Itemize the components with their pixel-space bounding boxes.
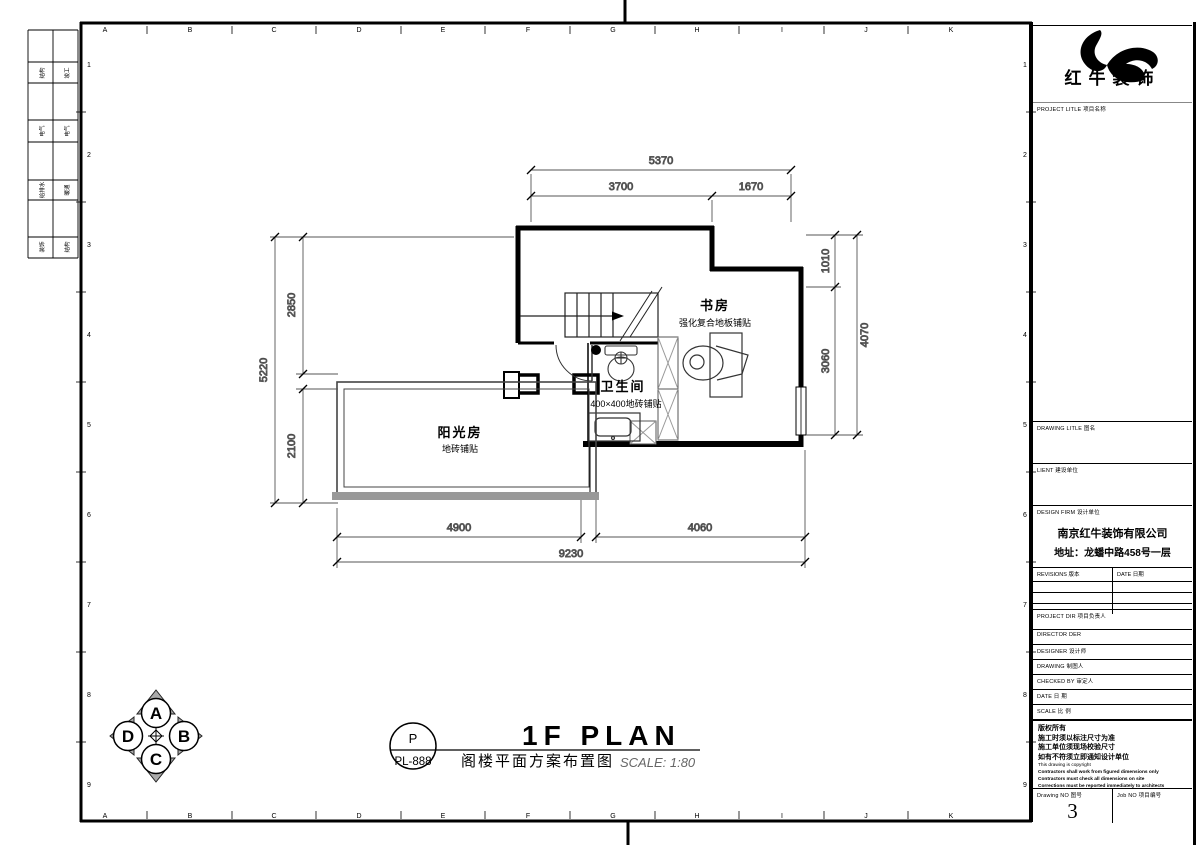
room-finish-sunroom: 地砖铺贴 xyxy=(442,443,478,454)
room-finish-bathroom: 400×400地砖铺贴 xyxy=(590,398,661,409)
design-firm-label: DESIGN FIRM 设计单位 xyxy=(1033,506,1192,516)
revision-row xyxy=(1033,581,1192,592)
grid-letter: F xyxy=(526,27,530,34)
grid-letter: I xyxy=(781,27,783,34)
drawing-canvas: A B C D E F G H I J K A B C D E F G H I … xyxy=(0,0,1200,845)
grid-number: 5 xyxy=(1023,422,1027,429)
dim-bottom-total: 9230 xyxy=(559,548,583,560)
checked-by-label: CHECKED BY 审定人 xyxy=(1033,675,1192,685)
dim-bottom-right: 4060 xyxy=(688,522,712,534)
grid-references: A B C D E F G H I J K A B C D E F G H I … xyxy=(76,26,1036,820)
grid-letter: A xyxy=(103,813,108,820)
drawing-label: DRAWING 制图人 xyxy=(1033,660,1192,670)
grid-number: 4 xyxy=(87,332,91,339)
job-no-label: Job NO 项目编号 xyxy=(1113,789,1192,799)
grid-number: 3 xyxy=(1023,242,1027,249)
grid-number: 8 xyxy=(87,692,91,699)
grid-number: 9 xyxy=(1023,782,1027,789)
project-title-section: PROJECT LITLE 项目名称 xyxy=(1033,102,1192,421)
dim-left-total: 5220 xyxy=(258,358,270,382)
copyright-line: 如有不符须立即通知设计单位 xyxy=(1033,753,1192,763)
revision-row xyxy=(1033,592,1192,603)
revisions-table: REVISIONS 版本 DATE 日期 xyxy=(1033,567,1192,609)
sunroom-enclosure xyxy=(332,382,599,500)
drawing-sheet: A B C D E F G H I J K A B C D E F G H I … xyxy=(0,0,1200,845)
date-col-label: DATE 日期 xyxy=(1112,568,1192,581)
copyright-line-en: Contractors must check all dimensions on… xyxy=(1033,776,1192,783)
drawing-no-label: Drawing NO 图号 xyxy=(1033,789,1112,799)
grid-letter: E xyxy=(441,813,446,820)
checked-row: CHECKED BY 审定人 xyxy=(1033,674,1192,689)
grid-number: 6 xyxy=(87,512,91,519)
grid-letter: H xyxy=(694,813,699,820)
grid-letter: C xyxy=(271,813,276,820)
drawing-title-label: DRAWING LITLE 图名 xyxy=(1033,422,1192,432)
drawing-row: DRAWING 制图人 xyxy=(1033,659,1192,674)
strip-cell: 电气 xyxy=(63,125,71,137)
grid-number: 7 xyxy=(1023,602,1027,609)
grid-number: 8 xyxy=(1023,692,1027,699)
design-firm-name: 南京红牛装饰有限公司 xyxy=(1033,525,1192,541)
copyright-line: 施工单位须现场校验尺寸 xyxy=(1033,743,1192,753)
dim-bottom-left: 4900 xyxy=(447,522,471,534)
compass-letter-d: D xyxy=(122,727,134,746)
copyright-line: 版权所有 xyxy=(1033,721,1192,734)
strip-cell: 结构 xyxy=(63,241,71,253)
dim-right-upper: 1010 xyxy=(820,249,832,273)
sheet-right-border xyxy=(1193,22,1196,845)
brand-area: 红牛装饰 xyxy=(1033,26,1192,88)
copyright-section: 版权所有 施工时须以标注尺寸为准 施工单位须现场校验尺寸 如有不符须立即通知设计… xyxy=(1033,719,1192,788)
dim-left-lower: 2100 xyxy=(286,434,298,458)
grid-letter: G xyxy=(610,27,615,34)
grid-number: 2 xyxy=(1023,152,1027,159)
strip-cell: 暖通 xyxy=(63,184,71,196)
sheet-title-en: 1F PLAN xyxy=(522,720,681,751)
drawing-no-value: 3 xyxy=(1033,799,1112,824)
staircase xyxy=(520,287,662,341)
grid-letter: I xyxy=(781,813,783,820)
orientation-compass: A B C D xyxy=(110,690,202,782)
sheet-title-group: P PL-888 1F PLAN 阁楼平面方案布置图 SCALE: 1:80 xyxy=(390,720,700,770)
grid-letter: D xyxy=(356,813,361,820)
strip-cell: 竣工 xyxy=(63,67,71,79)
grid-number: 6 xyxy=(1023,512,1027,519)
floor-drain xyxy=(591,345,601,355)
compass-letter-a: A xyxy=(150,704,162,723)
toilet xyxy=(605,346,637,381)
grid-letter: F xyxy=(526,813,530,820)
grid-letter: B xyxy=(188,813,193,820)
grid-letter: K xyxy=(949,27,954,34)
date-row: DATE 日 期 xyxy=(1033,689,1192,704)
design-firm-address: 地址：龙蟠中路458号一层 xyxy=(1033,544,1192,559)
director-row: DIRECTOR DER xyxy=(1033,629,1192,644)
number-section: Drawing NO 图号 3 Job NO 项目编号 xyxy=(1033,788,1192,823)
dim-top-total: 5370 xyxy=(649,155,673,167)
grid-ticks xyxy=(76,26,1036,819)
title-block: 红牛装饰 PROJECT LITLE 项目名称 DRAWING LITLE 图名… xyxy=(1033,25,1192,823)
window-right xyxy=(796,387,806,435)
revisions-label: REVISIONS 版本 xyxy=(1033,568,1112,581)
discipline-strip: 结构 竣工 电气 电气 给排水 暖通 装饰 结构 xyxy=(28,30,78,258)
sheet-title-cn: 阁楼平面方案布置图 xyxy=(461,752,614,770)
grid-letter: G xyxy=(610,813,615,820)
scale-label: SCALE 比 例 xyxy=(1033,705,1192,715)
grid-number: 3 xyxy=(87,242,91,249)
copyright-line: 施工时须以标注尺寸为准 xyxy=(1033,734,1192,744)
grid-number: 4 xyxy=(1023,332,1027,339)
room-label-sunroom: 阳光房 xyxy=(437,425,482,440)
sheet-code-bottom: PL-888 xyxy=(394,756,431,768)
compass-center-mark xyxy=(148,728,164,744)
grid-letter: E xyxy=(441,27,446,34)
strip-cell: 结构 xyxy=(38,67,46,79)
wall-step-block xyxy=(504,372,519,398)
designer-row: DESIGNER 设计师 xyxy=(1033,644,1192,659)
grid-number: 5 xyxy=(87,422,91,429)
dim-left-upper: 2850 xyxy=(286,293,298,317)
compass-letter-c: C xyxy=(150,750,162,769)
brand-name: 红牛装饰 xyxy=(1033,64,1192,89)
sheet-scale: SCALE: 1:80 xyxy=(620,755,696,770)
grid-number: 1 xyxy=(87,62,91,69)
stair-direction-arrow xyxy=(612,312,624,321)
scale-row: SCALE 比 例 xyxy=(1033,704,1192,719)
dim-right-total: 4070 xyxy=(859,323,871,347)
dim-top-right: 1670 xyxy=(739,181,763,193)
designer-label: DESIGNER 设计师 xyxy=(1033,645,1192,655)
sheet-frame xyxy=(80,0,1032,845)
strip-cell: 电气 xyxy=(38,125,46,137)
project-dir-row: PROJECT DIR 项目负责人 xyxy=(1033,609,1192,629)
design-firm-section: DESIGN FIRM 设计单位 南京红牛装饰有限公司 地址：龙蟠中路458号一… xyxy=(1033,505,1192,567)
grid-letter: J xyxy=(864,27,868,34)
client-label: LIENT 建设单位 xyxy=(1033,464,1192,474)
client-section: LIENT 建设单位 xyxy=(1033,463,1192,505)
sheet-code-top: P xyxy=(409,731,418,746)
date-label: DATE 日 期 xyxy=(1033,690,1192,700)
desk-and-chair xyxy=(683,333,748,397)
bathroom-walls xyxy=(518,343,658,492)
director-label: DIRECTOR DER xyxy=(1033,630,1192,638)
grid-number: 7 xyxy=(87,602,91,609)
strip-cell: 给排水 xyxy=(38,181,46,198)
floor-plan: 书房 强化复合地板铺贴 卫生间 400×400地砖铺贴 阳光房 地砖铺贴 xyxy=(332,226,806,500)
grid-letter: D xyxy=(356,27,361,34)
grid-number: 9 xyxy=(87,782,91,789)
grid-number: 1 xyxy=(1023,62,1027,69)
job-no-cell: Job NO 项目编号 xyxy=(1112,789,1192,823)
strip-cell: 装饰 xyxy=(38,241,46,253)
grid-letter: J xyxy=(864,813,868,820)
drawing-title-section: DRAWING LITLE 图名 xyxy=(1033,421,1192,463)
grid-letter: A xyxy=(103,27,108,34)
drawing-no-cell: Drawing NO 图号 3 xyxy=(1033,789,1112,823)
grid-letter: K xyxy=(949,813,954,820)
grid-letter: H xyxy=(694,27,699,34)
grid-number: 2 xyxy=(87,152,91,159)
compass-letter-b: B xyxy=(178,727,190,746)
grid-letter: C xyxy=(271,27,276,34)
project-title-label: PROJECT LITLE 项目名称 xyxy=(1033,103,1192,113)
room-label-study: 书房 xyxy=(700,298,730,313)
room-label-bathroom: 卫生间 xyxy=(600,379,645,394)
grid-letter: B xyxy=(188,27,193,34)
copyright-line-en: Contractors shall work from figured dime… xyxy=(1033,769,1192,776)
sunroom-base-band xyxy=(332,492,599,500)
project-dir-label: PROJECT DIR 项目负责人 xyxy=(1033,610,1192,620)
dim-right-lower: 3060 xyxy=(820,349,832,373)
dim-top-left: 3700 xyxy=(609,181,633,193)
dimensions: 5370 3700 1670 1010 3060 4070 5220 2850 … xyxy=(258,155,871,568)
room-finish-study: 强化复合地板铺贴 xyxy=(679,317,751,328)
copyright-line-en: This drawing is copyright xyxy=(1033,762,1192,769)
